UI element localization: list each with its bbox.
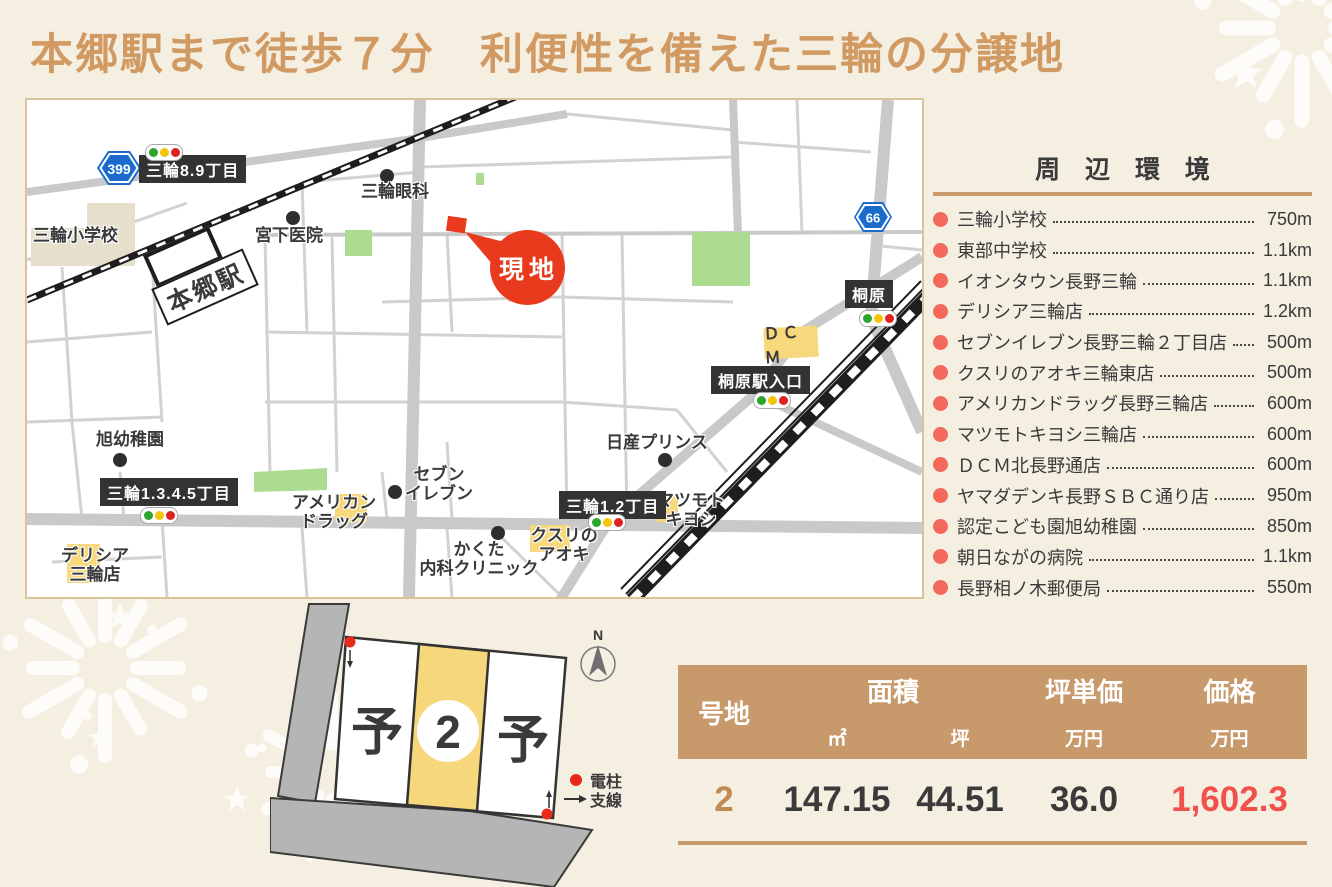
subcol-manyen-unit: 万円 (1016, 715, 1152, 759)
facility-item: アメリカンドラッグ長野三輪店600m (933, 388, 1312, 419)
col-price: 価格 (1152, 665, 1307, 715)
signal-icon (145, 144, 183, 161)
facility-item: セブンイレブン長野三輪２丁目店500m (933, 327, 1312, 358)
poi-nissan-prince: 日産プリンス (606, 433, 708, 452)
facility-item: 長野相ノ木郵便局550m (933, 572, 1312, 603)
dotted-leader (1214, 405, 1254, 407)
lot-plan-diagram: 予 2 予 N 電柱 支線 (270, 598, 670, 887)
label-miwa1345: 三輪1.3.4.5丁目 (100, 478, 238, 506)
price-table-row: 2 147.15 44.51 36.0 1,602.3 (678, 759, 1307, 841)
poi-american-drug: アメリカンドラッグ (292, 493, 376, 531)
bullet-icon (933, 488, 948, 503)
bullet-icon (933, 457, 948, 472)
route-399-badge: 399 (96, 150, 142, 186)
subcol-tsubo: 坪 (904, 715, 1016, 759)
dotted-leader (1143, 436, 1254, 438)
dotted-leader (1215, 498, 1254, 500)
price-table-bottom-line (678, 841, 1307, 845)
col-area: 面積 (770, 665, 1016, 715)
facility-item: ヤマダデンキ長野ＳＢＣ通り店950m (933, 480, 1312, 511)
poi-dot (286, 211, 300, 225)
label-kirihara: 桐原 (845, 280, 893, 308)
poi-miyashita: 宮下医院 (255, 226, 323, 245)
dotted-leader (1053, 221, 1254, 223)
facility-item: マツモトキヨシ三輪店600m (933, 419, 1312, 450)
dotted-leader (1143, 283, 1254, 285)
facility-item: イオンタウン長野三輪1.1km (933, 265, 1312, 296)
dotted-leader (1143, 528, 1254, 530)
facility-item: 東部中学校1.1km (933, 235, 1312, 266)
price-table-header: 号地 面積 坪単価 価格 ㎡ 坪 万円 万円 (678, 665, 1307, 759)
bullet-icon (933, 580, 948, 595)
bullet-icon (933, 427, 948, 442)
poi-seven-eleven: セブンイレブン (405, 465, 473, 503)
poi-miwa-ganka: 三輪眼科 (361, 182, 429, 201)
poi-matsumotokiyoshi: マツモトキヨシ (657, 491, 725, 529)
svg-text:66: 66 (866, 211, 880, 226)
park-block-small (345, 230, 372, 256)
lot-number: 2 (435, 706, 461, 758)
site-square (446, 216, 467, 233)
bullet-icon (933, 549, 948, 564)
poi-dot (113, 453, 127, 467)
site-marker-label: 現地 (490, 230, 565, 305)
route-66-badge: 66 (853, 201, 893, 233)
col-unit-price: 坪単価 (1016, 665, 1152, 715)
label-kirihara-eki: 桐原駅入口 (711, 366, 810, 394)
poi-dot (658, 453, 672, 467)
subcol-manyen-price: 万円 (1152, 715, 1307, 759)
lot-plan-graphics: 予 2 予 N 電柱 支線 (270, 598, 670, 887)
bullet-icon (933, 304, 948, 319)
svg-text:399: 399 (107, 161, 131, 177)
cell-unit-price: 36.0 (1016, 780, 1152, 820)
signal-icon (753, 392, 791, 409)
dotted-leader (1160, 375, 1254, 377)
poi-dot (491, 526, 505, 540)
price-table: 号地 面積 坪単価 価格 ㎡ 坪 万円 万円 2 147.15 44.51 36… (678, 665, 1307, 845)
cell-tsubo: 44.51 (904, 780, 1016, 820)
bullet-icon (933, 519, 948, 534)
compass-north-icon: N (581, 627, 615, 681)
area-map: 本郷駅 現地 399 66 三輪8.9丁目 桐原 桐原駅入口 三輪1.3.4.5… (25, 98, 924, 599)
facility-item: クスリのアオキ三輪東店500m (933, 357, 1312, 388)
legend-wire-label: 支線 (589, 791, 622, 810)
page-title: 本郷駅まで徒歩７分 利便性を備えた三輪の分譲地 (30, 20, 1065, 82)
surroundings-heading: 周 辺 環 境 (933, 150, 1312, 186)
col-lot: 号地 (678, 665, 770, 759)
bullet-icon (933, 396, 948, 411)
signal-icon (859, 310, 897, 327)
utility-pole-icon (345, 637, 356, 648)
bullet-icon (933, 335, 948, 350)
park-strip (254, 468, 327, 492)
lot-left-reserved: 予 (351, 704, 403, 762)
cell-price: 1,602.3 (1152, 780, 1307, 820)
poi-delicia: デリシア三輪店 (61, 546, 129, 584)
poi-kakuta-clinic: かくた内科クリニック (420, 540, 539, 578)
lot-right-reserved: 予 (497, 712, 549, 770)
poi-dot (388, 485, 402, 499)
facility-item: 朝日ながの病院1.1km (933, 542, 1312, 573)
subcol-sqm: ㎡ (770, 715, 904, 759)
utility-pole-icon (542, 809, 553, 820)
poi-kusurinoaoki: クスリのアオキ (530, 526, 598, 564)
surroundings-list: 三輪小学校750m 東部中学校1.1km イオンタウン長野三輪1.1km デリシ… (933, 204, 1312, 603)
facility-item: ＤＣＭ北長野通店600m (933, 450, 1312, 481)
facility-item: 三輪小学校750m (933, 204, 1312, 235)
bullet-icon (933, 243, 948, 258)
facility-item: デリシア三輪店1.2km (933, 296, 1312, 327)
poi-asahi-kindergarten: 旭幼稚園 (96, 430, 164, 449)
legend-pole-icon (570, 774, 582, 786)
signal-icon (140, 507, 178, 524)
dotted-leader (1107, 467, 1254, 469)
facility-item: 認定こども園旭幼稚園850m (933, 511, 1312, 542)
dotted-leader (1107, 590, 1254, 592)
poi-dot (380, 169, 394, 183)
dotted-leader (1089, 313, 1254, 315)
flyer-canvas: 本郷駅まで徒歩７分 利便性を備えた三輪の分譲地 (0, 0, 1332, 887)
svg-text:N: N (593, 627, 603, 643)
signal-icon (588, 514, 626, 531)
legend-pole-label: 電柱 (590, 772, 622, 791)
bullet-icon (933, 273, 948, 288)
legend-wire-icon (579, 795, 587, 803)
surroundings-underline (933, 192, 1312, 196)
dotted-leader (1233, 344, 1254, 346)
dotted-leader (1089, 559, 1254, 561)
poi-dcm: ＤＣＭ (763, 326, 819, 360)
cell-lot-number: 2 (678, 780, 770, 820)
cell-sqm: 147.15 (770, 780, 904, 820)
bullet-icon (933, 212, 948, 227)
bullet-icon (933, 365, 948, 380)
surroundings-panel: 周 辺 環 境 三輪小学校750m 東部中学校1.1km イオンタウン長野三輪1… (933, 150, 1312, 603)
poi-miwa-elementary: 三輪小学校 (33, 226, 118, 245)
dotted-leader (1053, 252, 1254, 254)
park-block-large (692, 232, 750, 286)
